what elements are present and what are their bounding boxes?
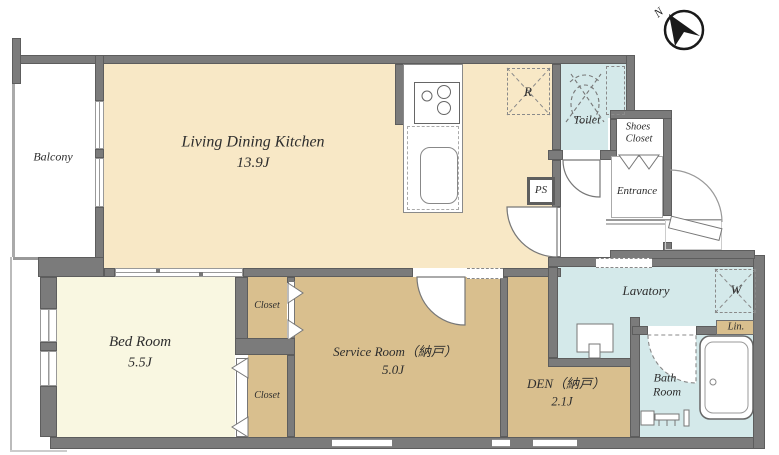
shoes-closet-label-2: Closet <box>626 133 653 144</box>
wall-shoes-west <box>610 119 617 152</box>
wall-toilet-west <box>552 64 561 150</box>
balcony-window-1 <box>95 101 104 149</box>
entrance-porch <box>665 220 722 250</box>
closet-upper-door-leaf <box>288 281 295 338</box>
wall-nw-corner-block <box>38 257 104 277</box>
closet-lower-label: Closet <box>254 391 280 402</box>
linen-label: Lin. <box>728 321 745 332</box>
service-room-label: Service Room（納戸） <box>333 345 457 359</box>
wall-ldk-west-a <box>95 55 104 101</box>
sliding-door-tick-2 <box>199 272 203 276</box>
wall-closet-east-lower <box>287 355 295 437</box>
wall-toilet-south-a <box>548 150 563 160</box>
refrigerator-label: R <box>524 85 532 99</box>
balcony-label: Balcony <box>33 151 72 164</box>
floor-plan: N Living Dining Kitchen 13.9J Balcony Be… <box>0 0 779 455</box>
kitchen-sink <box>420 147 458 204</box>
hall-floor <box>561 160 608 257</box>
exterior-line-bottom <box>10 450 67 452</box>
ldk-floor <box>103 64 552 268</box>
wall-ldk-south-a <box>104 268 115 277</box>
north-compass-icon: N <box>650 4 703 49</box>
south-window-2 <box>492 439 510 447</box>
wall-den-lavatory-divider <box>548 267 558 358</box>
ldk-bedroom-sliding-door <box>115 268 243 277</box>
wall-bottom <box>50 437 765 449</box>
bathroom-label-2: Room <box>653 386 681 399</box>
ldk-size-label: 13.9J <box>237 156 270 172</box>
toilet-label: Toilet <box>574 114 601 127</box>
wall-ldk-west-mid <box>95 149 104 158</box>
wall-bed-east <box>235 277 248 342</box>
bathroom-label-1: Bath <box>654 372 677 385</box>
closet-upper-label: Closet <box>254 301 280 312</box>
compass-north-label: N <box>650 4 667 21</box>
closet-lower-door-leaf <box>236 358 248 437</box>
balcony-window-2 <box>95 158 104 207</box>
toilet-cabinet <box>606 66 625 115</box>
stove <box>414 82 460 124</box>
toilet-door-gap <box>563 150 600 160</box>
lavatory-nook-floor <box>558 317 630 358</box>
wall-entrance-east-a <box>663 110 672 216</box>
sliding-door-tick-1 <box>156 269 160 273</box>
bedroom-window-2 <box>40 351 57 386</box>
service-room-size-label: 5.0J <box>382 363 404 377</box>
wall-bed-west-a <box>40 277 57 309</box>
south-window-3 <box>533 439 577 447</box>
entrance-label: Entrance <box>617 186 657 198</box>
washer-label: W <box>731 283 742 297</box>
den-label: DEN（納戸） <box>527 377 605 391</box>
hall-ldk-door-leaf <box>552 207 561 257</box>
wall-top <box>20 55 635 64</box>
bedroom-size-label: 5.5J <box>128 357 152 372</box>
wall-stub-topleft <box>12 38 21 84</box>
wall-bed-west-b <box>40 386 57 437</box>
wall-ldk-south-b <box>243 268 413 277</box>
wall-service-den-divider <box>500 277 508 437</box>
den-size-label: 2.1J <box>551 395 572 408</box>
bath-door-gap <box>648 326 696 335</box>
south-window-1 <box>332 439 392 447</box>
den-floor-upper <box>508 277 548 367</box>
bedroom-window-1 <box>40 309 57 342</box>
lavatory-label: Lavatory <box>623 284 670 298</box>
service-room-opening <box>467 268 503 279</box>
balcony-edge-left <box>12 55 15 257</box>
bedroom-label: Bed Room <box>109 335 171 351</box>
exterior-line-left <box>10 257 12 452</box>
wall-closet-mid <box>235 338 295 355</box>
pipe-space-label: PS <box>535 185 547 197</box>
shoes-closet-label-1: Shoes <box>626 121 651 132</box>
ldk-label: Living Dining Kitchen <box>181 135 324 152</box>
wall-bed-west-mid <box>40 342 57 351</box>
entrance-step-line-2 <box>606 223 666 225</box>
lavatory-sliding-door <box>596 258 652 268</box>
wall-bath-north-a <box>632 326 648 335</box>
front-door-arc <box>670 170 722 222</box>
wall-bath-west <box>630 317 640 437</box>
wall-nook-south <box>548 358 632 367</box>
wall-toilet-east <box>626 55 635 118</box>
